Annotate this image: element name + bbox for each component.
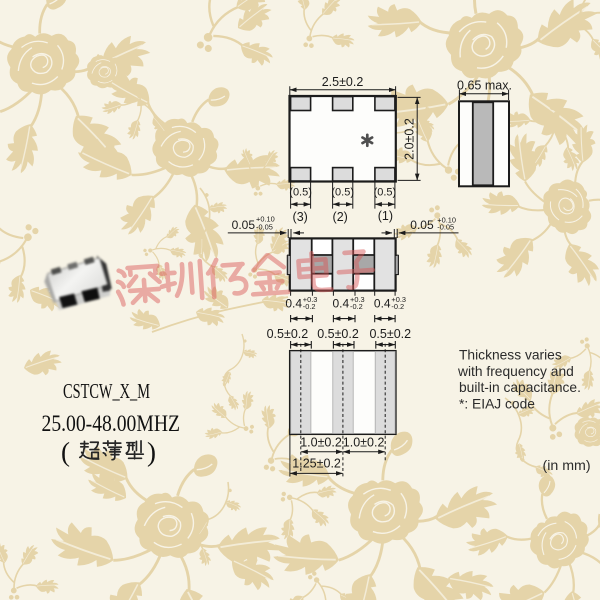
svg-text:(0.5): (0.5) bbox=[331, 187, 354, 199]
svg-text:-0.2: -0.2 bbox=[391, 302, 404, 311]
svg-text:0.65 max.: 0.65 max. bbox=[457, 79, 512, 93]
svg-text:-0.2: -0.2 bbox=[303, 302, 316, 311]
svg-text:(3): (3) bbox=[293, 210, 308, 224]
svg-text:1.0±0.2: 1.0±0.2 bbox=[343, 436, 385, 450]
svg-text:-0.05: -0.05 bbox=[437, 223, 454, 232]
svg-text:built-in capacitance.: built-in capacitance. bbox=[459, 380, 581, 395]
svg-text:(0.5): (0.5) bbox=[374, 187, 397, 199]
svg-text:0.05: 0.05 bbox=[410, 218, 434, 232]
svg-text:(2): (2) bbox=[333, 210, 348, 224]
svg-text:): ) bbox=[147, 437, 156, 467]
svg-text:1.0±0.2: 1.0±0.2 bbox=[300, 436, 342, 450]
svg-text:0.5±0.2: 0.5±0.2 bbox=[317, 327, 359, 341]
svg-text:1.25±0.2: 1.25±0.2 bbox=[292, 456, 341, 470]
svg-text:Thickness varies: Thickness varies bbox=[459, 348, 562, 363]
svg-text:0.05: 0.05 bbox=[232, 218, 256, 232]
svg-text:0.4: 0.4 bbox=[374, 296, 391, 310]
svg-text:(in mm): (in mm) bbox=[543, 458, 591, 474]
svg-text:25.00-48.00MHZ: 25.00-48.00MHZ bbox=[42, 411, 181, 437]
svg-text:2.5±0.2: 2.5±0.2 bbox=[322, 75, 364, 89]
svg-text:(1): (1) bbox=[378, 209, 393, 223]
svg-text:-0.05: -0.05 bbox=[256, 222, 273, 231]
svg-text:0.4: 0.4 bbox=[285, 296, 302, 310]
svg-text:0.5±0.2: 0.5±0.2 bbox=[369, 327, 411, 341]
svg-text:CSTCW_X_M: CSTCW_X_M bbox=[63, 379, 150, 403]
svg-text:0.5±0.2: 0.5±0.2 bbox=[267, 327, 309, 341]
svg-text:0.4: 0.4 bbox=[333, 296, 350, 310]
svg-text:*: EIAJ code: *: EIAJ code bbox=[459, 397, 535, 412]
svg-text:-0.2: -0.2 bbox=[350, 302, 363, 311]
svg-text:(0.5): (0.5) bbox=[289, 187, 312, 199]
svg-text:(: ( bbox=[61, 437, 70, 467]
svg-text:with frequency and: with frequency and bbox=[457, 364, 574, 379]
svg-text:2.0±0.2: 2.0±0.2 bbox=[402, 118, 416, 160]
